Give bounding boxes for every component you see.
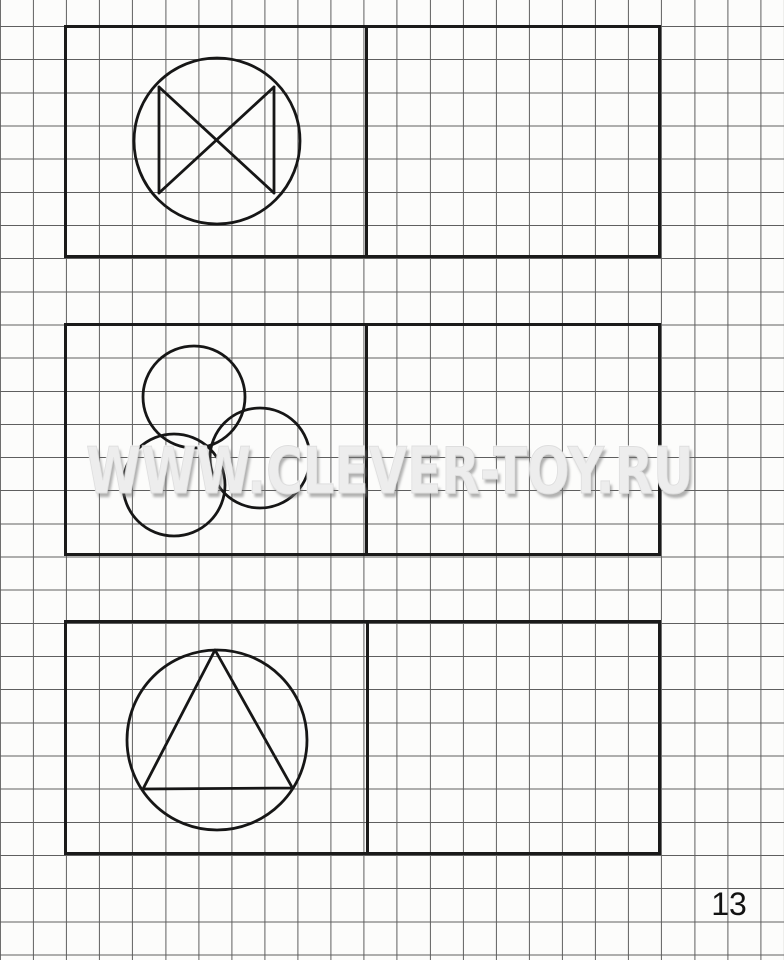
exercise-frame-exercise-1 bbox=[64, 25, 661, 258]
watermark-text: WWW.CLEVER-TOY.RU bbox=[86, 440, 694, 504]
frame-divider bbox=[365, 27, 368, 256]
workbook-page: WWW.CLEVER-TOY.RU 13 bbox=[0, 0, 784, 960]
page-number: 13 bbox=[705, 886, 753, 923]
frame-divider bbox=[366, 622, 369, 853]
exercise-frame-exercise-3 bbox=[64, 620, 661, 855]
